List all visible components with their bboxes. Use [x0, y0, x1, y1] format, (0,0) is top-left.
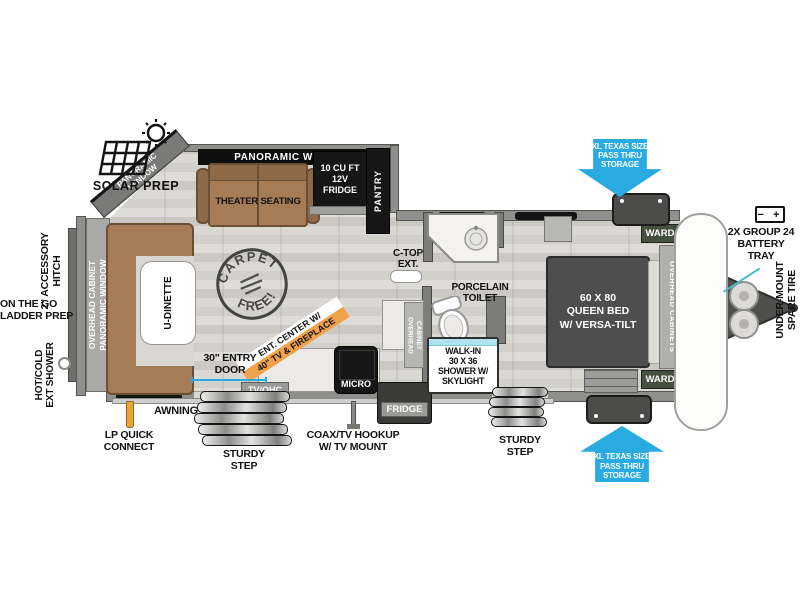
fridge-12v: 10 CU FT 12V FRIDGE	[313, 151, 367, 208]
c-top-ext-flap	[390, 270, 422, 283]
u-dinette-label: U-DINETTE	[161, 266, 175, 340]
battery-icon: − +	[755, 206, 785, 223]
microwave-label: MICRO	[334, 377, 378, 391]
porcelain-toilet-label: PORCELAIN TOILET	[445, 282, 515, 304]
fridge-tag: FRIDGE	[381, 402, 428, 417]
coax-stem	[351, 401, 356, 426]
solar-prep-label: SOLAR PREP	[86, 179, 186, 193]
stamp-center-marks	[238, 274, 264, 295]
shower-skylight-strip	[429, 339, 497, 346]
dresser	[544, 216, 572, 242]
entry-door-label: 30" ENTRY DOOR	[186, 353, 274, 377]
fridge-base	[309, 206, 371, 215]
storage-door-bottom	[586, 395, 652, 424]
sturdy-step-2	[488, 387, 552, 433]
front-cap	[674, 213, 728, 431]
bed-foot-step	[584, 369, 638, 393]
vanity-sink	[426, 212, 500, 264]
ladder-prep-label: ON THE GO LADDER PREP	[0, 299, 76, 323]
walk-in-shower: WALK-IN 30 X 36 SHOWER W/ SKYLIGHT	[427, 337, 499, 394]
rear-wall	[76, 216, 86, 396]
door-width-line	[191, 377, 267, 383]
slide-right-wall	[390, 145, 399, 213]
theater-seating-label: THEATER SEATING	[202, 197, 314, 208]
microwave-door	[339, 350, 375, 380]
spare-tire-label: UNDER-MOUNT SPARE TIRE	[774, 245, 800, 355]
lp-quick-connect-label: LP QUICK CONNECT	[94, 430, 164, 454]
svg-text:FREE!: FREE!	[232, 285, 281, 318]
pass-thru-arrow-bottom: XL TEXAS SIZE PASS THRU STORAGE	[580, 426, 664, 482]
rv-floorplan: CARPET FREE! OVERHEAD CABINET PANORAMIC …	[0, 0, 800, 600]
ext-shower-label: HOT/COLD EXT SHOWER	[33, 330, 57, 420]
shower-label: WALK-IN 30 X 36 SHOWER W/ SKYLIGHT	[429, 347, 497, 386]
overhead-cabinet-label: OVERHEAD CABINET	[405, 304, 423, 366]
pass-thru-arrow-top-label: XL TEXAS SIZE PASS THRU STORAGE	[578, 142, 662, 170]
sturdy-step-1-label: STURDY STEP	[204, 449, 284, 473]
ext-shower-port	[58, 357, 71, 370]
lp-quick-connect-stem	[126, 401, 134, 428]
solar-prep-icon	[96, 118, 176, 180]
awning-label: AWNING	[141, 405, 211, 417]
sturdy-step-2-label: STURDY STEP	[490, 435, 550, 459]
theater-seam	[257, 165, 259, 225]
stamp-bottom-text: FREE!	[232, 285, 281, 318]
sturdy-step-1	[194, 391, 294, 449]
queen-bed-label: 60 X 80 QUEEN BED W/ VERSA-TILT	[548, 258, 648, 366]
pantry-label: PANTRY	[371, 153, 385, 229]
storage-door-top	[612, 193, 670, 226]
coax-label: COAX/TV HOOKUP W/ TV MOUNT	[298, 430, 408, 454]
pass-thru-arrow-top: XL TEXAS SIZE PASS THRU STORAGE	[578, 139, 662, 197]
pass-thru-arrow-bottom-label: XL TEXAS SIZE PASS THRU STORAGE	[580, 452, 664, 480]
c-top-ext-label: C-TOP EXT.	[386, 248, 430, 270]
